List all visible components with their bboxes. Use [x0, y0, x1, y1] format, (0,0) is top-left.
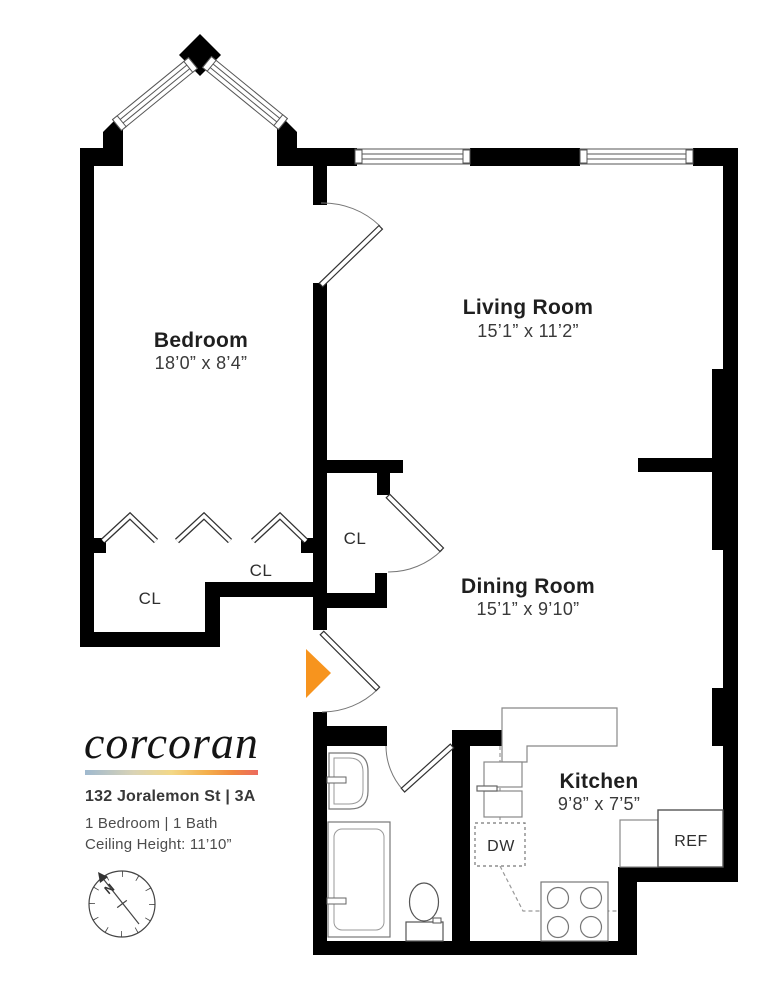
dishwasher-label: DW [487, 838, 515, 855]
refrigerator-label: REF [674, 833, 708, 850]
toilet [406, 883, 443, 941]
bedroom-label: Bedroom [154, 329, 248, 352]
closet-label-2: CL [250, 561, 273, 580]
bedroom-door [319, 203, 382, 287]
closet-door [386, 494, 443, 572]
living-room-window-2 [580, 149, 693, 164]
bedroom-dims: 18’0” x 8’4” [155, 353, 248, 373]
bay-window-left [113, 58, 198, 131]
corcoran-logo: corcoran [84, 717, 259, 768]
bathroom-door [386, 744, 454, 792]
dining-room-label: Dining Room [461, 575, 595, 598]
bay-window-right [203, 57, 288, 130]
unit-info-line: 1 Bedroom | 1 Bath [85, 815, 218, 832]
bathtub [327, 822, 390, 937]
doors [319, 203, 453, 792]
floor-plan-canvas: Bedroom 18’0” x 8’4” Living Room 15’1” x… [0, 0, 773, 1000]
ceiling-height-line: Ceiling Height: 11’10” [85, 836, 232, 853]
branding-block: corcoran 132 Joralemon St | 3A 1 Bedroom… [84, 717, 259, 853]
bathroom-sink [327, 753, 368, 809]
compass-north-label: N [102, 881, 118, 897]
kitchen-counter-peninsula [502, 708, 617, 762]
living-room-window-1 [355, 149, 470, 164]
dining-room-dims: 15’1” x 9’10” [477, 599, 580, 619]
address-line: 132 Joralemon St | 3A [85, 788, 256, 805]
bathroom-fixtures [327, 753, 443, 941]
compass-rose: N [89, 871, 155, 937]
kitchen-fixtures [475, 708, 723, 941]
stove [541, 882, 608, 941]
living-room-dims: 15’1” x 11’2” [477, 321, 579, 341]
floor-plan-page: Bedroom 18’0” x 8’4” Living Room 15’1” x… [0, 0, 773, 1000]
kitchen-side-counter [620, 820, 658, 867]
entrance-marker [306, 649, 331, 698]
living-room-label: Living Room [463, 296, 593, 319]
kitchen-dims: 9’8” x 7’5” [558, 794, 640, 814]
closet-bifold-doors [103, 516, 306, 541]
closet-label-1: CL [139, 589, 162, 608]
closet-label-3: CL [344, 529, 367, 548]
brand-gradient-bar [85, 770, 258, 775]
kitchen-label: Kitchen [559, 770, 638, 793]
